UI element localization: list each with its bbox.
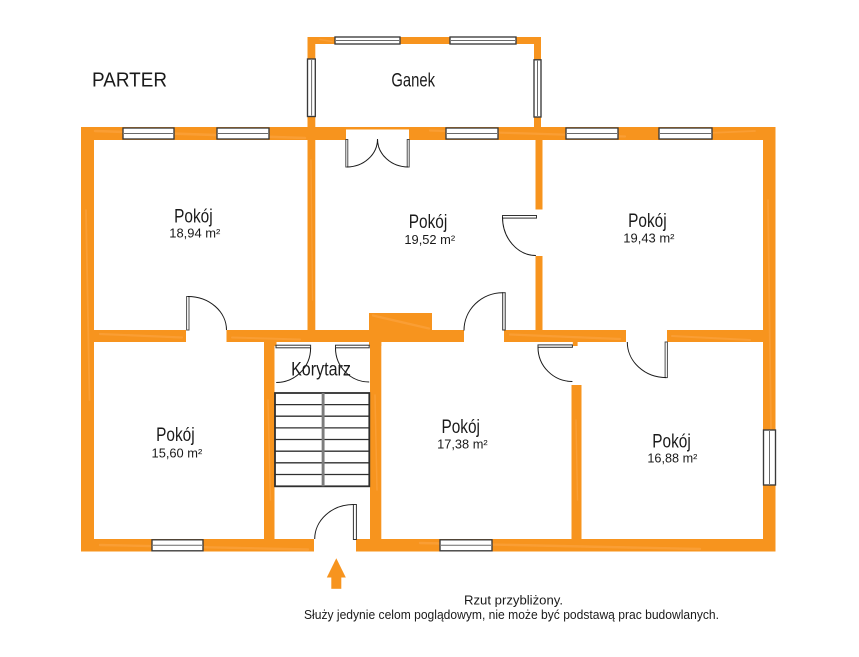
svg-text:Służy jedynie celom poglądowym: Służy jedynie celom poglądowym, nie może… <box>304 607 719 622</box>
svg-text:Korytarz: Korytarz <box>291 359 351 381</box>
svg-text:Ganek: Ganek <box>391 71 435 92</box>
svg-text:Rzut przybliżony.: Rzut przybliżony. <box>464 593 563 608</box>
svg-text:19,52 m²: 19,52 m² <box>404 233 455 247</box>
svg-text:15,60 m²: 15,60 m² <box>152 447 203 461</box>
svg-text:Pokój: Pokój <box>441 416 480 438</box>
svg-text:Pokój: Pokój <box>174 206 213 228</box>
svg-text:Pokój: Pokój <box>409 211 448 233</box>
svg-text:PARTER: PARTER <box>92 70 167 92</box>
svg-text:16,88 m²: 16,88 m² <box>647 451 697 465</box>
svg-text:19,43 m²: 19,43 m² <box>623 232 674 246</box>
svg-text:Pokój: Pokój <box>652 430 691 452</box>
svg-text:Pokój: Pokój <box>628 210 667 232</box>
svg-text:17,38 m²: 17,38 m² <box>437 438 488 452</box>
svg-text:Pokój: Pokój <box>156 424 195 446</box>
svg-text:18,94 m²: 18,94 m² <box>169 227 220 241</box>
